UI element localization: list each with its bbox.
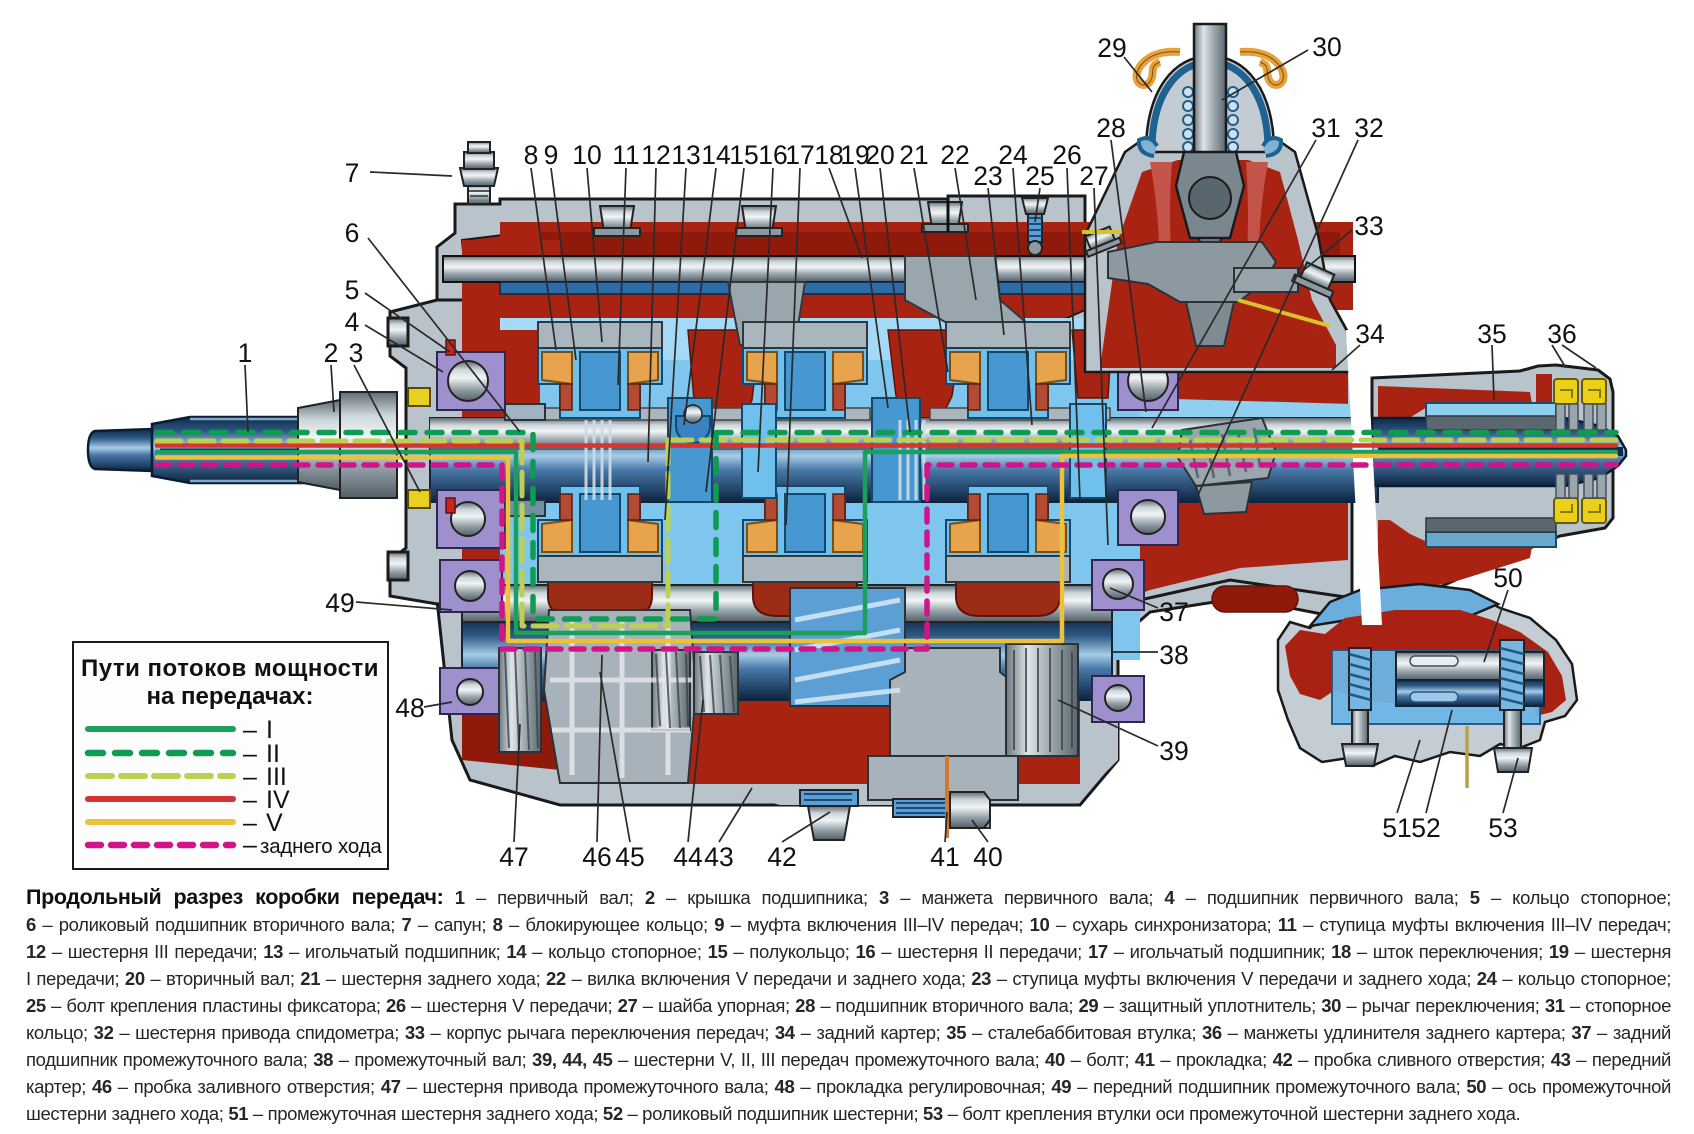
svg-text:22: 22 — [940, 140, 969, 170]
svg-text:37: 37 — [1159, 597, 1188, 627]
svg-text:6: 6 — [345, 218, 360, 248]
svg-text:43: 43 — [704, 842, 733, 872]
svg-text:35: 35 — [1477, 319, 1506, 349]
svg-text:9: 9 — [544, 140, 559, 170]
svg-text:32: 32 — [1354, 113, 1383, 143]
svg-text:33: 33 — [1354, 211, 1383, 241]
svg-text:16: 16 — [758, 140, 787, 170]
svg-text:21: 21 — [899, 140, 928, 170]
svg-text:14: 14 — [701, 140, 730, 170]
svg-text:24: 24 — [998, 140, 1027, 170]
svg-text:27: 27 — [1079, 161, 1108, 191]
svg-text:52: 52 — [1411, 813, 1440, 843]
svg-text:11: 11 — [612, 140, 640, 170]
svg-text:–: – — [243, 831, 257, 859]
svg-text:34: 34 — [1355, 319, 1384, 349]
svg-text:2: 2 — [324, 338, 339, 368]
svg-text:заднего хода: заднего хода — [260, 835, 382, 858]
svg-text:44: 44 — [673, 842, 702, 872]
svg-text:31: 31 — [1311, 113, 1340, 143]
svg-text:15: 15 — [729, 140, 758, 170]
svg-text:1: 1 — [238, 338, 253, 368]
svg-text:4: 4 — [345, 307, 360, 337]
svg-text:12: 12 — [641, 140, 670, 170]
svg-text:51: 51 — [1382, 813, 1411, 843]
svg-text:5: 5 — [345, 275, 360, 305]
svg-text:26: 26 — [1052, 140, 1081, 170]
svg-text:7: 7 — [345, 158, 360, 188]
svg-text:41: 41 — [930, 842, 959, 872]
svg-text:29: 29 — [1097, 33, 1126, 63]
svg-text:47: 47 — [499, 842, 528, 872]
svg-text:36: 36 — [1547, 319, 1576, 349]
svg-text:8: 8 — [524, 140, 539, 170]
svg-text:40: 40 — [973, 842, 1002, 872]
svg-text:30: 30 — [1312, 32, 1341, 62]
svg-text:42: 42 — [767, 842, 796, 872]
svg-text:17: 17 — [785, 140, 814, 170]
svg-text:3: 3 — [349, 338, 364, 368]
svg-text:48: 48 — [395, 693, 424, 723]
svg-text:25: 25 — [1025, 161, 1054, 191]
svg-text:28: 28 — [1096, 113, 1125, 143]
svg-text:10: 10 — [572, 140, 601, 170]
svg-text:45: 45 — [615, 842, 644, 872]
svg-text:13: 13 — [671, 140, 700, 170]
svg-text:50: 50 — [1493, 563, 1522, 593]
svg-text:39: 39 — [1159, 736, 1188, 766]
svg-text:на передачах:: на передачах: — [147, 683, 314, 710]
svg-text:Пути потоков мощности: Пути потоков мощности — [81, 655, 379, 682]
svg-text:53: 53 — [1488, 813, 1517, 843]
svg-text:V: V — [266, 809, 283, 837]
svg-text:46: 46 — [582, 842, 611, 872]
svg-text:49: 49 — [325, 588, 354, 618]
svg-text:20: 20 — [865, 140, 894, 170]
svg-text:38: 38 — [1159, 640, 1188, 670]
